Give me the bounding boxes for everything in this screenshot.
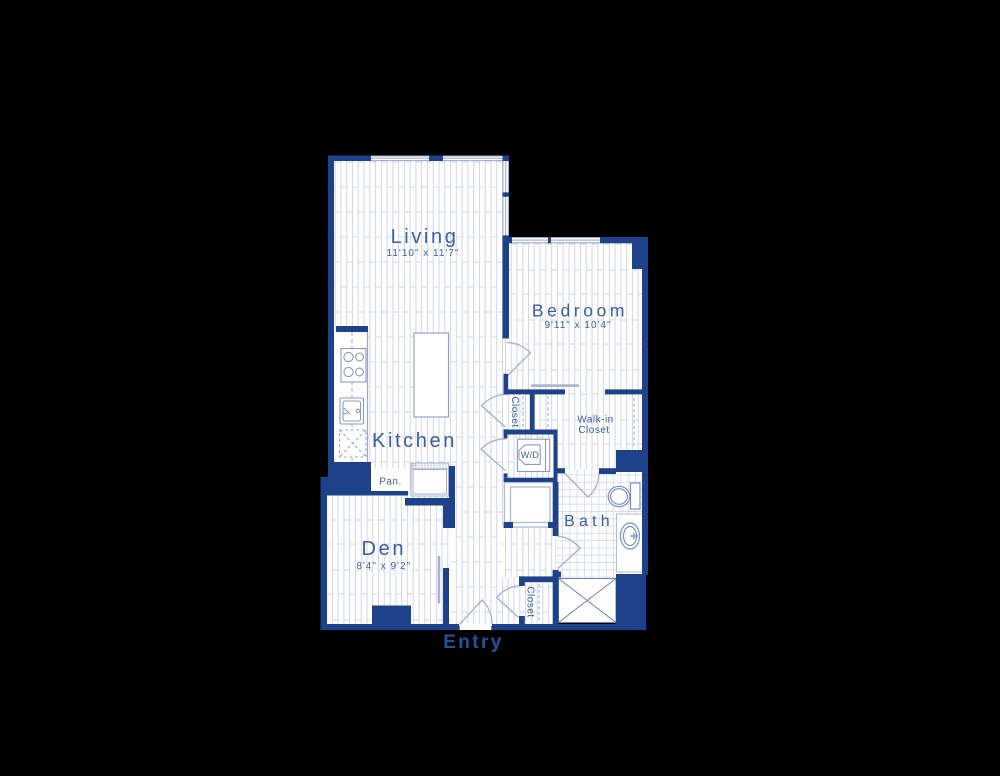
svg-text:Walk-in: Walk-in	[577, 415, 613, 426]
svg-text:W/D: W/D	[521, 450, 540, 460]
svg-text:9'11" x 10'4": 9'11" x 10'4"	[544, 320, 611, 331]
svg-text:8'4" x 9'2": 8'4" x 9'2"	[356, 561, 411, 572]
svg-text:Closet: Closet	[578, 425, 609, 436]
svg-text:Bedroom: Bedroom	[532, 301, 628, 321]
svg-text:Living: Living	[391, 226, 459, 248]
svg-text:Kitchen: Kitchen	[372, 430, 457, 452]
svg-text:Entry: Entry	[443, 632, 504, 653]
svg-text:Bath: Bath	[564, 513, 614, 530]
svg-text:11'10" x 11'7": 11'10" x 11'7"	[387, 248, 460, 259]
svg-text:Pan.: Pan.	[379, 477, 402, 488]
svg-text:Den: Den	[362, 538, 407, 560]
svg-text:Closet: Closet	[509, 396, 520, 427]
svg-text:Closet: Closet	[524, 586, 535, 617]
